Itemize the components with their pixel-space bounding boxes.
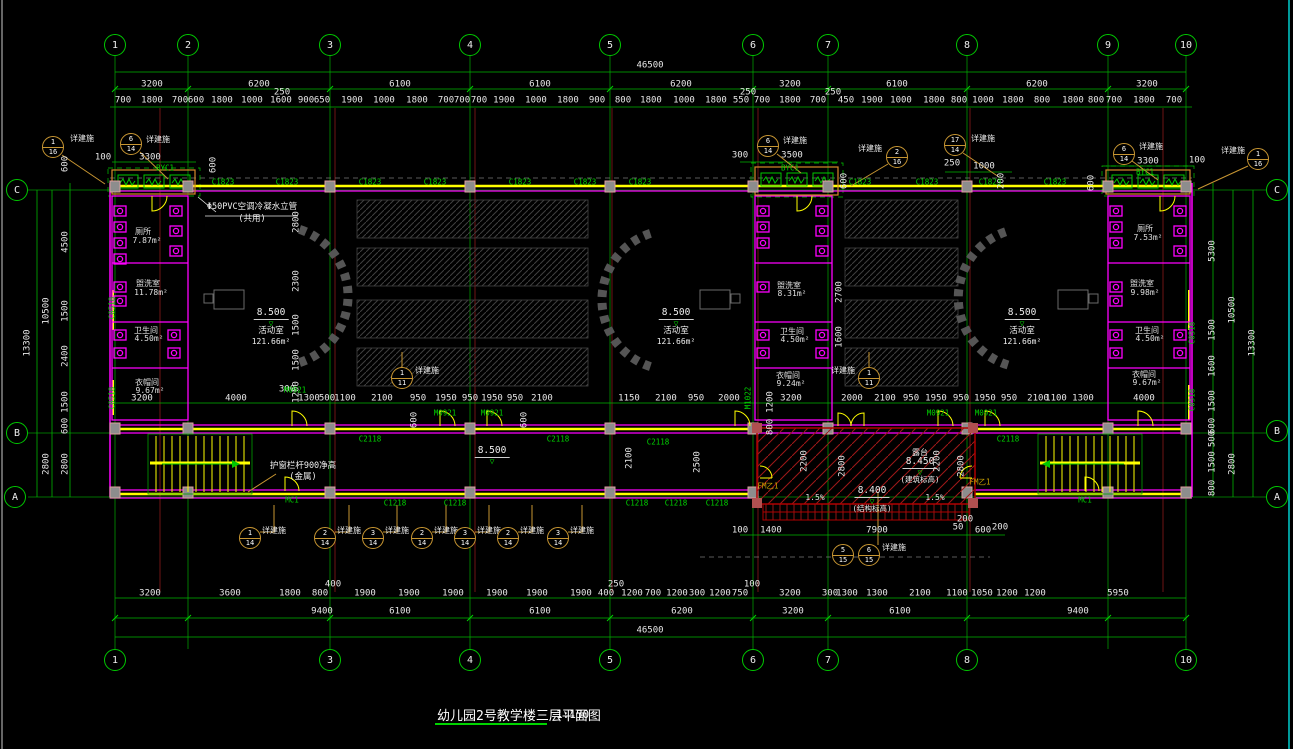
- dim-corridor: 2100: [531, 395, 553, 404]
- dim-left: 10500: [43, 297, 52, 324]
- callout-label: 详建施: [971, 135, 995, 143]
- dim-corridor: 2000: [841, 395, 863, 404]
- dim-corridor: 1950: [435, 395, 457, 404]
- grid-lines: [28, 56, 1266, 649]
- dim-top-overall: 46500: [636, 62, 663, 71]
- dim-right: 1600: [1209, 355, 1218, 377]
- grid-bubble-C: C: [6, 179, 28, 201]
- dim-terrace: 1400: [760, 527, 782, 536]
- dim-top-segment: 6100: [886, 81, 908, 90]
- dim-top-small: 100: [1189, 157, 1205, 166]
- dim-bottom-detail: 400: [598, 590, 614, 599]
- dim-top-detail: 800: [1088, 97, 1104, 106]
- dim-corridor: 1950: [974, 395, 996, 404]
- dim-left: 4500: [62, 231, 71, 253]
- callout-label: 详建施: [337, 527, 361, 535]
- dim-top-small: 600: [62, 156, 71, 172]
- dim-bottom-mid: 9400: [1067, 608, 1089, 617]
- window-door-tag: C1823: [979, 178, 1002, 186]
- dim-corridor: 1950: [481, 395, 503, 404]
- window-door-tag: C1823: [424, 178, 447, 186]
- dim-corridor: 1950: [925, 395, 947, 404]
- callout-label: 详建施: [570, 527, 594, 535]
- dim-bottom-detail: 750: [732, 590, 748, 599]
- dim-corridor: 4000: [1133, 395, 1155, 404]
- dim-bottom-detail: 1900: [354, 590, 376, 599]
- dim-bottom-mid: 6100: [529, 608, 551, 617]
- dim-top-detail: 900: [298, 97, 314, 106]
- grid-bubble-8: 8: [956, 34, 978, 56]
- dim-corridor: 4000: [225, 395, 247, 404]
- dim-top-detail: 1600: [270, 97, 292, 106]
- dim-terrace: 600: [975, 527, 991, 536]
- dim-top-detail: 1800: [1062, 97, 1084, 106]
- room-label: 盥洗室: [1130, 280, 1154, 288]
- annotation: (金属): [289, 473, 316, 482]
- dim-top-detail: 1800: [141, 97, 163, 106]
- window-door-tag: C1823: [509, 178, 532, 186]
- dim-top-detail: 700: [1166, 97, 1182, 106]
- dim-top-small: 1000: [973, 163, 995, 172]
- dim-inner: 1200: [767, 391, 776, 413]
- dim-top-detail: 700: [115, 97, 131, 106]
- dim-top-segment: 6200: [248, 81, 270, 90]
- dim-inner: 2200: [801, 450, 810, 472]
- dim-bottom-detail: 3200: [139, 590, 161, 599]
- dim-top-small: 600: [210, 157, 219, 173]
- detail-callout: 314: [547, 527, 569, 549]
- detail-callout: 111: [391, 367, 413, 389]
- dim-top-detail: 1900: [341, 97, 363, 106]
- room-label: 4.50m²: [1136, 335, 1165, 343]
- classroom-furniture: [204, 229, 1098, 366]
- dimension-lines: [37, 72, 1253, 637]
- annotation: 护窗栏杆900净高: [270, 462, 336, 471]
- window-door-tag: MC1: [285, 496, 299, 504]
- annotation: Φ50PVC空调冷凝水立管: [207, 203, 297, 212]
- grid-bubble-10: 10: [1175, 34, 1197, 56]
- dim-bottom-detail: 1300: [836, 590, 858, 599]
- dim-top-segment: 6100: [389, 81, 411, 90]
- window-door-tag: C1218: [665, 499, 688, 507]
- window-door-tag: BYC1: [156, 164, 174, 172]
- callout-label: 详建施: [520, 527, 544, 535]
- dim-corridor: 950: [903, 395, 919, 404]
- dim-top-detail: 1800: [705, 97, 727, 106]
- detail-callout: 614: [120, 133, 142, 155]
- detail-callout: 214: [314, 527, 336, 549]
- dim-right: 2800: [1229, 453, 1238, 475]
- dim-inner: 2500: [694, 451, 703, 473]
- grid-bubble-5: 5: [599, 649, 621, 671]
- window-door-tag: M0921: [284, 386, 307, 394]
- dim-right: 1500: [1209, 451, 1218, 473]
- detail-callout: 515: [832, 544, 854, 566]
- dim-bottom-detail: 1200: [1024, 590, 1046, 599]
- window-door-tag: MC1: [1078, 496, 1092, 504]
- dim-corridor: 950: [953, 395, 969, 404]
- dim-inner: 1500: [293, 314, 302, 336]
- grid-bubble-1: 1: [104, 649, 126, 671]
- grid-bubble-2: 2: [177, 34, 199, 56]
- dim-bottom-above: 100: [744, 581, 760, 590]
- detail-callout: 216: [886, 146, 908, 168]
- dim-bottom-detail: 1900: [398, 590, 420, 599]
- dim-bottom-mid: 6200: [671, 608, 693, 617]
- window-door-tag: M1022: [744, 387, 752, 410]
- dim-top-detail: 800: [951, 97, 967, 106]
- grid-bubble-1: 1: [104, 34, 126, 56]
- axis-red-lines: [160, 108, 1163, 592]
- room-label: 9.24m²: [777, 380, 806, 388]
- dim-left: 600: [62, 418, 71, 434]
- dim-corridor: 1150: [618, 395, 640, 404]
- grid-bubble-4: 4: [459, 649, 481, 671]
- dim-bottom-mid: 6100: [389, 608, 411, 617]
- dim-top-segment: 6100: [529, 81, 551, 90]
- annotation: (共用): [238, 215, 265, 224]
- detail-callout: 614: [757, 135, 779, 157]
- window-door-tag: M0921: [975, 409, 998, 417]
- dim-top-detail: 800: [1034, 97, 1050, 106]
- dim-inner: 600: [411, 412, 420, 428]
- dim-top-detail: 700: [438, 97, 454, 106]
- dim-top-detail: 450: [838, 97, 854, 106]
- dim-terrace: 200: [992, 524, 1008, 533]
- dim-top-detail: 700: [172, 97, 188, 106]
- dim-inner: 1600: [836, 326, 845, 348]
- stairs-right: [1038, 434, 1142, 494]
- dim-right: 1500: [1209, 390, 1218, 412]
- dim-bottom-above: 400: [325, 581, 341, 590]
- window-door-tag: C1823: [916, 178, 939, 186]
- dim-terrace: 7900: [866, 527, 888, 536]
- grid-bubble-7: 7: [817, 649, 839, 671]
- level-marker: 露台8.450▽(建筑标高): [900, 448, 939, 485]
- grid-bubble-5: 5: [599, 34, 621, 56]
- grid-bubble-6: 6: [742, 34, 764, 56]
- detail-callout: 614: [1113, 143, 1135, 165]
- dim-bottom-detail: 1900: [526, 590, 548, 599]
- dim-inner: 2800: [293, 211, 302, 233]
- dim-inner: 1500: [293, 349, 302, 371]
- dim-right: 800: [1209, 480, 1218, 496]
- dim-terrace: 50: [953, 524, 964, 533]
- detail-callout: 116: [42, 136, 64, 158]
- dim-top-detail: 1000: [673, 97, 695, 106]
- dim-top-detail: 1800: [1002, 97, 1024, 106]
- dim-bottom-detail: 800: [312, 590, 328, 599]
- stairs-left: [148, 434, 252, 494]
- callout-label: 详建施: [70, 135, 94, 143]
- grid-bubble-10: 10: [1175, 649, 1197, 671]
- detail-callout: 116: [1247, 148, 1269, 170]
- dim-corridor: 500: [319, 395, 335, 404]
- dim-bottom-detail: 1900: [442, 590, 464, 599]
- dim-top-small: 250: [944, 160, 960, 169]
- dim-top-detail: 1800: [779, 97, 801, 106]
- dim-top-detail: 1800: [923, 97, 945, 106]
- dim-top-small: 300: [732, 152, 748, 161]
- window-door-tag: C1823: [629, 178, 652, 186]
- window-door-tag: BYC1: [1136, 168, 1154, 176]
- grid-bubble-3: 3: [319, 649, 341, 671]
- drawing-scale: 1:150: [556, 708, 589, 721]
- dim-corridor: 2000: [718, 395, 740, 404]
- dim-right: 1500: [1209, 319, 1218, 341]
- dim-bottom-mid: 9400: [311, 608, 333, 617]
- window-door-tag: M0921: [481, 409, 504, 417]
- dim-corridor: 1100: [334, 395, 356, 404]
- dim-bottom-detail: 1900: [570, 590, 592, 599]
- window-door-tag: C1823: [849, 178, 872, 186]
- detail-callout: 314: [454, 527, 476, 549]
- dim-right: 5300: [1209, 240, 1218, 262]
- dim-top-segment: 6200: [670, 81, 692, 90]
- dim-bottom-detail: 1100: [946, 590, 968, 599]
- window-door-tag: C1218: [384, 499, 407, 507]
- grid-bubble-B: B: [1266, 420, 1288, 442]
- dim-bottom-detail: 3600: [219, 590, 241, 599]
- dim-left: 1500: [62, 391, 71, 413]
- dim-inner: 2300: [293, 270, 302, 292]
- dim-corridor: 950: [462, 395, 478, 404]
- callout-label: 详建施: [783, 137, 807, 145]
- window-door-tag: C1823: [359, 178, 382, 186]
- dim-top-detail: 1800: [640, 97, 662, 106]
- dim-bottom-detail: 1200: [621, 590, 643, 599]
- callout-label: 详建施: [262, 527, 286, 535]
- window-door-tag: C1218: [706, 499, 729, 507]
- floor-plan-drawing: [0, 0, 1293, 749]
- dim-top-detail: 1900: [861, 97, 883, 106]
- dim-corridor: 1300: [1072, 395, 1094, 404]
- grid-bubble-B: B: [6, 422, 28, 444]
- dim-bottom-detail: 3200: [779, 590, 801, 599]
- dim-inner: 800: [767, 419, 776, 435]
- dim-top-detail: 1000: [890, 97, 912, 106]
- dim-top-detail: 1000: [373, 97, 395, 106]
- dim-top-detail: 700: [1106, 97, 1122, 106]
- grid-bubble-9: 9: [1097, 34, 1119, 56]
- dim-top-detail: 1800: [211, 97, 233, 106]
- window-door-tag: C0518: [108, 297, 116, 320]
- dim-right: 10500: [1229, 296, 1238, 323]
- dim-top-detail: 700: [471, 97, 487, 106]
- grid-bubble-4: 4: [459, 34, 481, 56]
- dim-bottom-detail: 5950: [1107, 590, 1129, 599]
- detail-callout: 214: [411, 527, 433, 549]
- dim-bottom-detail: 1800: [279, 590, 301, 599]
- dim-inner: 600: [521, 412, 530, 428]
- window-door-tag: M0921: [434, 409, 457, 417]
- detail-callout: 214: [497, 527, 519, 549]
- dim-top-segment: 3200: [779, 81, 801, 90]
- dim-top-detail: 650: [314, 97, 330, 106]
- detail-callout: 615: [858, 544, 880, 566]
- dim-left: 2800: [62, 453, 71, 475]
- grid-bubble-7: 7: [817, 34, 839, 56]
- dim-bottom-detail: 1900: [486, 590, 508, 599]
- dim-top-detail: 600: [188, 97, 204, 106]
- dim-top-small: 600: [1088, 175, 1097, 191]
- dimension-ticks: [112, 86, 1189, 621]
- dim-top-detail: 550: [733, 97, 749, 106]
- room-label: 9.67m²: [136, 387, 165, 395]
- window-door-tag: C1218: [444, 499, 467, 507]
- window-door-tag: C1823: [1044, 178, 1067, 186]
- dim-top-segment: 3200: [1136, 81, 1158, 90]
- level-marker: 8.500▽活动室121.66m²: [1003, 308, 1042, 346]
- dim-corridor: 2100: [874, 395, 896, 404]
- window-door-tag: C2118: [647, 438, 670, 446]
- dim-right: 13300: [1249, 329, 1258, 356]
- floor-plan-canvas: 幼儿园2号教学楼三层平面图 1:150 46500320062006100610…: [0, 0, 1293, 749]
- dim-top-small: 3500: [781, 152, 803, 161]
- detail-callout: 114: [239, 527, 261, 549]
- dim-top-segment: 6200: [1026, 81, 1048, 90]
- grid-bubble-8: 8: [956, 649, 978, 671]
- dim-left: 2800: [43, 453, 52, 475]
- dim-top-small: 3300: [139, 154, 161, 163]
- callout-label: 详建施: [1139, 143, 1163, 151]
- level-marker: 8.500▽活动室121.66m²: [657, 308, 696, 346]
- bed-area-hatch: [357, 200, 958, 386]
- callout-label: 详建施: [858, 145, 882, 153]
- dim-terrace: 100: [732, 527, 748, 536]
- dim-corridor: 1100: [1045, 395, 1067, 404]
- dim-bottom-above: 250: [608, 581, 624, 590]
- fire-door-tag: FM乙1: [757, 482, 778, 490]
- dim-bottom-mid: 3200: [782, 608, 804, 617]
- callout-label: 详建施: [415, 367, 439, 375]
- room-label: 4.50m²: [135, 335, 164, 343]
- level-marker: 8.500▽活动室121.66m²: [252, 308, 291, 346]
- dim-top-detail: 1800: [557, 97, 579, 106]
- dim-left: 2400: [62, 345, 71, 367]
- window-door-tag: C1823: [276, 178, 299, 186]
- dim-inner: 2100: [626, 447, 635, 469]
- dim-top-detail: 700: [810, 97, 826, 106]
- callout-label: 详建施: [385, 527, 409, 535]
- dim-bottom-detail: 1200: [666, 590, 688, 599]
- slope-label: 1.5%: [925, 494, 944, 502]
- window-door-tag: C0518: [1188, 322, 1196, 345]
- window-door-tag: C2118: [997, 435, 1020, 443]
- detail-callout: 1714: [944, 134, 966, 156]
- level-marker: 8.500▽: [475, 446, 510, 465]
- dim-top-segment: 3200: [141, 81, 163, 90]
- dim-corridor: 950: [410, 395, 426, 404]
- dim-top-detail: 1000: [241, 97, 263, 106]
- grid-bubble-6: 6: [742, 649, 764, 671]
- room-label: 盥洗室: [136, 280, 160, 288]
- fire-door-tag: FM乙1: [969, 478, 990, 486]
- slope-label: 1.5%: [805, 494, 824, 502]
- room-label: 厕所: [135, 228, 151, 236]
- dim-bottom-detail: 2100: [909, 590, 931, 599]
- window-door-tag: C2118: [359, 435, 382, 443]
- dim-top-small: 100: [95, 154, 111, 163]
- room-label: 9.98m²: [1131, 289, 1160, 297]
- callout-label: 详建施: [146, 136, 170, 144]
- detail-callout: 111: [858, 367, 880, 389]
- room-label: 9.67m²: [1133, 379, 1162, 387]
- window-door-tag: C1218: [626, 499, 649, 507]
- dim-corridor: 950: [507, 395, 523, 404]
- dim-top-detail: 900: [589, 97, 605, 106]
- dim-corridor: 950: [1001, 395, 1017, 404]
- dim-top-small: 3300: [1137, 158, 1159, 167]
- room-label: 8.31m²: [778, 290, 807, 298]
- grid-bubble-3: 3: [319, 34, 341, 56]
- grid-bubble-C: C: [1266, 179, 1288, 201]
- title-underline: [435, 723, 547, 725]
- dim-corridor: 3200: [131, 395, 153, 404]
- window-door-tag: C0518: [1188, 389, 1196, 412]
- dim-corridor: 2100: [371, 395, 393, 404]
- level-marker: 8.400▽(结构标高): [852, 486, 891, 514]
- dim-bottom-detail: 1200: [709, 590, 731, 599]
- room-label: 7.87m²: [133, 237, 162, 245]
- room-label: 11.78m²: [134, 289, 168, 297]
- window-door-tag: BYC1: [781, 164, 799, 172]
- callout-label: 详建施: [1221, 147, 1245, 155]
- callout-label: 详建施: [831, 367, 855, 375]
- dim-top-detail: 1800: [1133, 97, 1155, 106]
- dim-top-detail: 1000: [525, 97, 547, 106]
- dim-top-detail: 700: [754, 97, 770, 106]
- dim-bottom-detail: 1050: [971, 590, 993, 599]
- dim-inner: 2700: [836, 281, 845, 303]
- room-label: 7.53m²: [1134, 234, 1163, 242]
- dim-bottom-detail: 1300: [866, 590, 888, 599]
- grid-bubble-A: A: [1266, 486, 1288, 508]
- callout-label: 详建施: [882, 544, 906, 552]
- dim-top-detail: 700: [454, 97, 470, 106]
- window-door-tag: C2118: [547, 435, 570, 443]
- dim-corridor: 2100: [655, 395, 677, 404]
- dim-inner: 2800: [839, 455, 848, 477]
- detail-callout: 314: [362, 527, 384, 549]
- grid-bubble-A: A: [4, 486, 26, 508]
- dim-bottom-detail: 700: [645, 590, 661, 599]
- dim-bottom-detail: 1200: [996, 590, 1018, 599]
- window-door-tag: M0921: [927, 409, 950, 417]
- dim-top-detail: 1800: [406, 97, 428, 106]
- dim-right: 500: [1209, 431, 1218, 447]
- window-door-tag: C0518: [108, 387, 116, 410]
- dim-inner: 2800: [958, 455, 967, 477]
- window-door-tag: C1823: [574, 178, 597, 186]
- dim-bottom-detail: 300: [689, 590, 705, 599]
- dim-bottom-overall: 46500: [636, 627, 663, 636]
- dim-left: 1500: [62, 300, 71, 322]
- dim-top-detail: 1900: [493, 97, 515, 106]
- dim-corridor: 3200: [780, 395, 802, 404]
- room-label: 厕所: [1137, 225, 1153, 233]
- room-label: 4.50m²: [781, 336, 810, 344]
- dim-left: 13300: [24, 329, 33, 356]
- dim-top-detail: 800: [615, 97, 631, 106]
- dim-corridor: 950: [688, 395, 704, 404]
- dim-top-detail: 1000: [972, 97, 994, 106]
- dim-bottom-mid: 6100: [889, 608, 911, 617]
- window-door-tag: C1823: [212, 178, 235, 186]
